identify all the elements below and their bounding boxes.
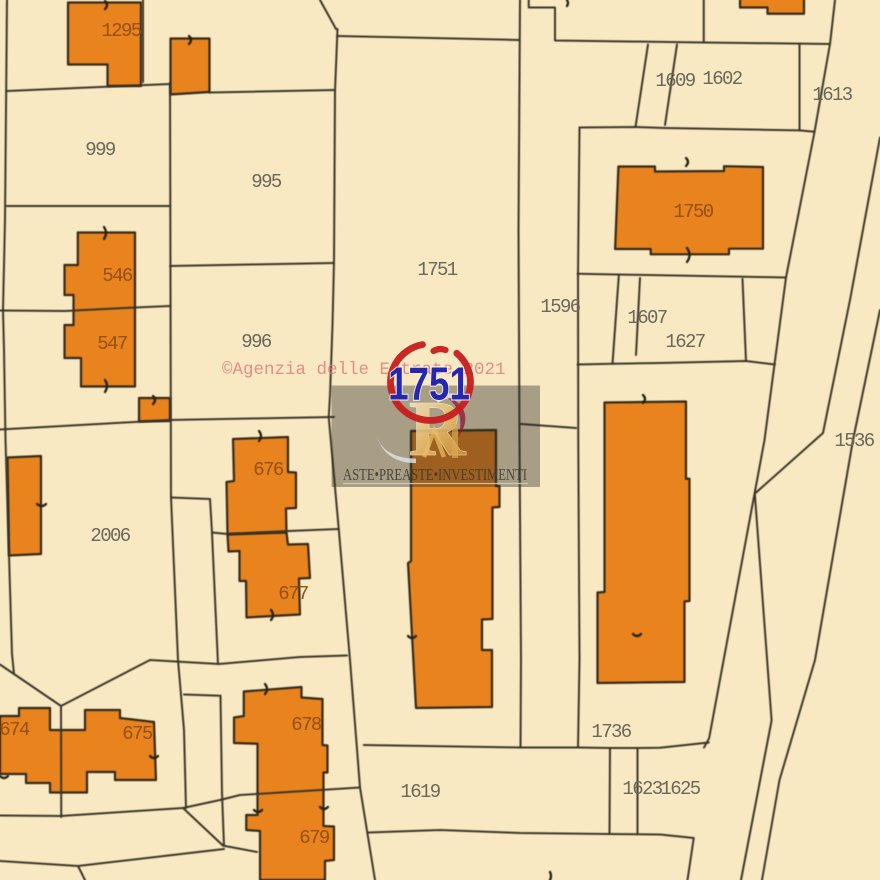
svg-text:1623: 1623 (622, 778, 662, 800)
svg-text:996: 996 (241, 331, 272, 353)
svg-text:1750: 1750 (673, 201, 713, 223)
svg-text:1607: 1607 (627, 307, 666, 329)
svg-text:2006: 2006 (90, 525, 130, 547)
svg-text:547: 547 (97, 333, 127, 355)
svg-text:677: 677 (278, 583, 308, 605)
svg-text:995: 995 (251, 171, 282, 193)
svg-text:1295: 1295 (101, 20, 141, 42)
svg-text:678: 678 (291, 714, 322, 736)
svg-text:1751: 1751 (388, 358, 470, 410)
svg-text:679: 679 (299, 827, 330, 849)
svg-text:675: 675 (122, 723, 153, 745)
svg-text:1625: 1625 (660, 778, 700, 800)
svg-text:546: 546 (102, 265, 133, 287)
svg-text:676: 676 (253, 459, 284, 481)
svg-text:999: 999 (85, 139, 116, 161)
svg-text:1736: 1736 (591, 721, 631, 743)
svg-text:674: 674 (0, 719, 30, 741)
svg-text:1596: 1596 (540, 296, 580, 318)
svg-text:1536: 1536 (834, 430, 874, 452)
svg-text:1602: 1602 (702, 68, 742, 90)
svg-text:ASTE•PREASTE•INVESTIMENTI: ASTE•PREASTE•INVESTIMENTI (343, 465, 527, 484)
svg-text:1627: 1627 (665, 331, 704, 353)
svg-text:1613: 1613 (812, 84, 852, 106)
svg-text:1751: 1751 (417, 259, 457, 281)
svg-text:1619: 1619 (400, 781, 440, 803)
svg-text:1609: 1609 (655, 70, 695, 92)
